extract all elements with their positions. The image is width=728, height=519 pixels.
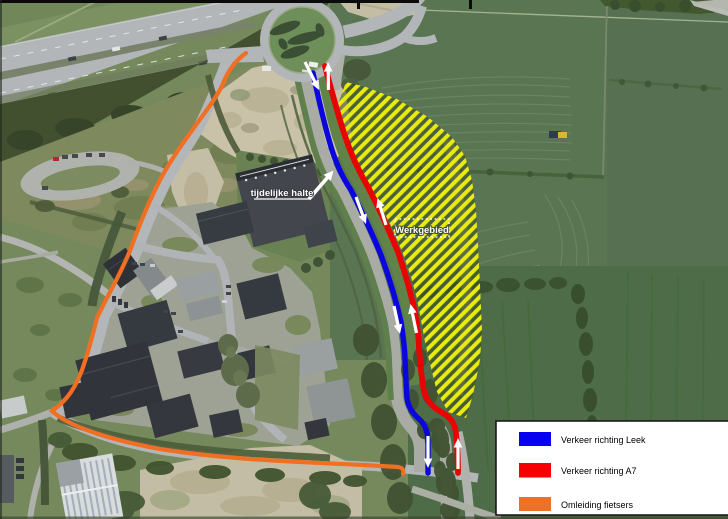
svg-text:Verkeer richting Leek: Verkeer richting Leek: [561, 435, 646, 445]
svg-text:Werkgebied: Werkgebied: [395, 225, 449, 236]
svg-text:Verkeer richting A7: Verkeer richting A7: [561, 466, 637, 476]
svg-text:Omleiding fietsers: Omleiding fietsers: [561, 500, 634, 510]
svg-text:tijdelijke halte: tijdelijke halte: [251, 188, 314, 199]
